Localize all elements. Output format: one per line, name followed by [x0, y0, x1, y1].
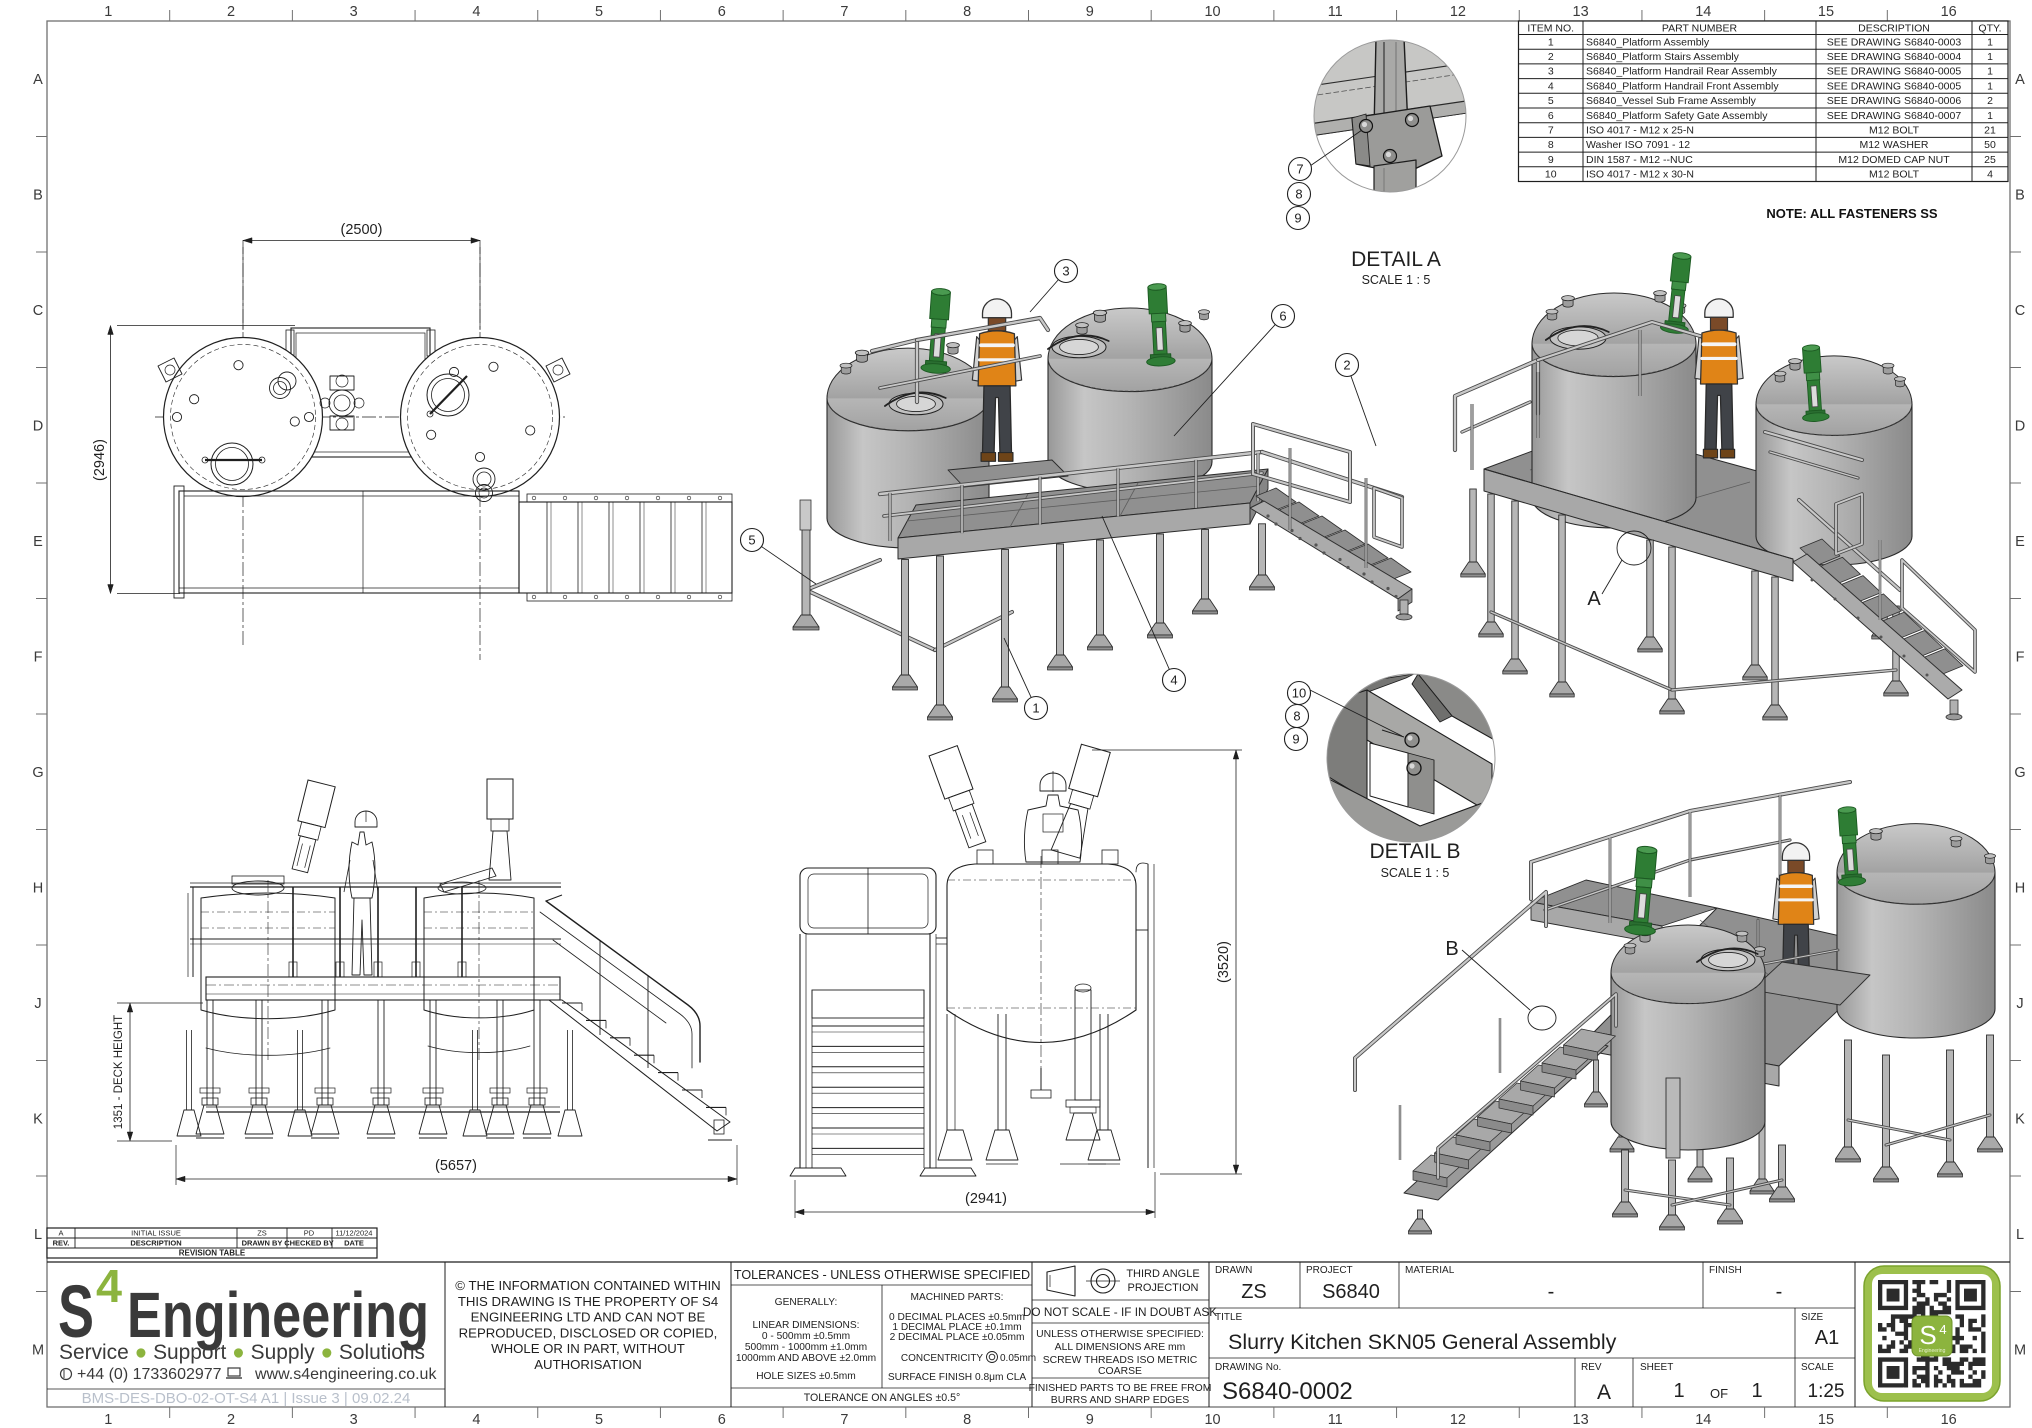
svg-text:12: 12	[1450, 4, 1466, 20]
svg-text:ISO 4017 - M12 x 25-N: ISO 4017 - M12 x 25-N	[1586, 125, 1694, 137]
svg-text:M: M	[32, 1342, 44, 1358]
svg-text:SHEET: SHEET	[1640, 1362, 1673, 1373]
svg-text:1: 1	[1032, 701, 1039, 716]
svg-text:DRAWN BY: DRAWN BY	[242, 1239, 283, 1248]
svg-text:15: 15	[1818, 1412, 1834, 1428]
svg-text:AUTHORISATION: AUTHORISATION	[534, 1357, 641, 1372]
svg-text:6: 6	[1279, 309, 1286, 324]
svg-text:DO NOT SCALE - IF IN DOUBT ASK: DO NOT SCALE - IF IN DOUBT ASK	[1023, 1305, 1217, 1319]
svg-text:PART NUMBER: PART NUMBER	[1662, 23, 1738, 35]
svg-text:10: 10	[1204, 4, 1220, 20]
svg-text:SCALE 1 : 5: SCALE 1 : 5	[1381, 866, 1450, 880]
svg-text:0 - 500mm ±0.5mm: 0 - 500mm ±0.5mm	[762, 1331, 850, 1342]
svg-text:-: -	[1776, 1281, 1783, 1303]
svg-text:S6840-0002: S6840-0002	[1222, 1378, 1353, 1405]
svg-text:S6840_Platform Stairs Assembly: S6840_Platform Stairs Assembly	[1586, 51, 1740, 63]
svg-text:1: 1	[1673, 1380, 1684, 1402]
svg-text:ZS: ZS	[257, 1229, 267, 1238]
svg-text:3: 3	[1062, 264, 1069, 279]
svg-text:7: 7	[1296, 162, 1303, 177]
svg-text:REV.: REV.	[53, 1239, 70, 1248]
svg-text:5: 5	[748, 533, 755, 548]
svg-text:A: A	[1597, 1381, 1611, 1404]
svg-text:A: A	[58, 1229, 63, 1238]
svg-text:G: G	[2014, 765, 2025, 781]
svg-text:14: 14	[1695, 4, 1711, 20]
svg-text:7: 7	[840, 1412, 848, 1428]
svg-text:ALL DIMENSIONS ARE mm: ALL DIMENSIONS ARE mm	[1055, 1342, 1186, 1353]
svg-text:3: 3	[1548, 66, 1554, 78]
svg-text:SEE DRAWING S6840-0005: SEE DRAWING S6840-0005	[1827, 66, 1962, 78]
svg-text:ISO 4017 - M12 x 30-N: ISO 4017 - M12 x 30-N	[1586, 169, 1694, 181]
svg-text:SEE DRAWING S6840-0005: SEE DRAWING S6840-0005	[1827, 80, 1962, 92]
svg-text:NOTE: ALL FASTENERS SS: NOTE: ALL FASTENERS SS	[1766, 206, 1938, 221]
svg-text:C: C	[2015, 303, 2025, 319]
svg-text:DETAIL A: DETAIL A	[1351, 248, 1441, 271]
svg-text:L: L	[2016, 1227, 2024, 1243]
svg-text:TITLE: TITLE	[1215, 1312, 1243, 1323]
svg-text:DRAWING No.: DRAWING No.	[1215, 1362, 1281, 1373]
svg-text:PROJECT: PROJECT	[1306, 1265, 1353, 1276]
svg-text:F: F	[2016, 649, 2025, 665]
svg-text:DETAIL B: DETAIL B	[1369, 840, 1460, 863]
svg-text:9: 9	[1294, 211, 1301, 226]
svg-text:QTY.: QTY.	[1978, 23, 2001, 35]
svg-text:(5657): (5657)	[435, 1158, 477, 1174]
svg-text:1351 - DECK HEIGHT: 1351 - DECK HEIGHT	[113, 1015, 125, 1129]
svg-text:DRAWN: DRAWN	[1215, 1265, 1252, 1276]
svg-text:B: B	[2015, 187, 2025, 203]
svg-text:TOLERANCES - UNLESS OTHERWISE: TOLERANCES - UNLESS OTHERWISE SPECIFIED	[734, 1268, 1030, 1282]
svg-text:M12 BOLT: M12 BOLT	[1869, 125, 1920, 137]
svg-text:5: 5	[595, 1412, 603, 1428]
svg-text:8: 8	[963, 1412, 971, 1428]
svg-text:11/12/2024: 11/12/2024	[336, 1229, 373, 1238]
svg-text:CHECKED BY: CHECKED BY	[284, 1239, 334, 1248]
svg-text:11: 11	[1328, 1412, 1343, 1428]
svg-text:S: S	[1919, 1320, 1936, 1350]
svg-text:H: H	[2015, 880, 2025, 896]
svg-text:SCREW THREADS ISO METRIC: SCREW THREADS ISO METRIC	[1043, 1355, 1198, 1366]
svg-text:INITIAL ISSUE: INITIAL ISSUE	[131, 1229, 181, 1238]
svg-text:ITEM NO.: ITEM NO.	[1527, 23, 1574, 35]
svg-text:6: 6	[718, 4, 726, 20]
svg-text:2: 2	[1343, 358, 1350, 373]
svg-text:3: 3	[350, 4, 358, 20]
svg-text:MATERIAL: MATERIAL	[1405, 1265, 1455, 1276]
svg-text:A: A	[33, 72, 43, 88]
svg-text:COARSE: COARSE	[1098, 1366, 1142, 1377]
svg-text:1: 1	[1987, 80, 1993, 92]
svg-text:C: C	[33, 303, 43, 319]
svg-text:A1: A1	[1815, 1327, 1839, 1349]
svg-text:4: 4	[1548, 80, 1554, 92]
svg-text:500mm - 1000mm ±1.0mm: 500mm - 1000mm ±1.0mm	[745, 1342, 867, 1353]
svg-text:4: 4	[1170, 673, 1177, 688]
svg-text:11: 11	[1328, 4, 1343, 20]
svg-text:2: 2	[1987, 95, 1993, 107]
svg-text:SEE DRAWING S6840-0007: SEE DRAWING S6840-0007	[1827, 110, 1962, 122]
svg-text:1: 1	[1548, 36, 1554, 48]
svg-text:0.05mm: 0.05mm	[1000, 1353, 1036, 1364]
svg-text:K: K	[2015, 1111, 2025, 1127]
svg-text:-: -	[1548, 1281, 1555, 1303]
svg-text:4: 4	[96, 1260, 122, 1312]
svg-text:5: 5	[1548, 95, 1554, 107]
svg-text:SIZE: SIZE	[1801, 1312, 1824, 1323]
svg-text:7: 7	[1548, 125, 1554, 137]
svg-text:D: D	[33, 418, 43, 434]
svg-text:REVISION TABLE: REVISION TABLE	[179, 1249, 246, 1258]
svg-text:S6840_Platform Assembly: S6840_Platform Assembly	[1586, 36, 1710, 48]
svg-text:M: M	[2014, 1342, 2026, 1358]
svg-text:E: E	[2015, 534, 2025, 550]
svg-text:CONCENTRICITY: CONCENTRICITY	[901, 1353, 984, 1364]
svg-text:www.s4engineering.co.uk: www.s4engineering.co.uk	[254, 1366, 437, 1383]
svg-text:M12 WASHER: M12 WASHER	[1859, 139, 1928, 151]
svg-text:S6840_Platform Handrail Rear A: S6840_Platform Handrail Rear Assembly	[1586, 66, 1778, 78]
svg-text:S6840_Platform Safety Gate Ass: S6840_Platform Safety Gate Assembly	[1586, 110, 1768, 122]
svg-text:Engineering: Engineering	[1919, 1348, 1946, 1354]
svg-text:DESCRIPTION: DESCRIPTION	[1858, 23, 1930, 35]
svg-text:M12 BOLT: M12 BOLT	[1869, 169, 1920, 181]
svg-text:K: K	[33, 1111, 43, 1127]
svg-text:A: A	[2015, 72, 2025, 88]
svg-text:1: 1	[1987, 36, 1993, 48]
svg-text:Washer ISO 7091 - 12: Washer ISO 7091 - 12	[1586, 139, 1690, 151]
svg-text:13: 13	[1573, 1412, 1589, 1428]
svg-text:SEE DRAWING S6840-0006: SEE DRAWING S6840-0006	[1827, 95, 1962, 107]
svg-text:REV: REV	[1581, 1362, 1602, 1373]
svg-text:SEE DRAWING S6840-0003: SEE DRAWING S6840-0003	[1827, 36, 1962, 48]
svg-text:2: 2	[227, 1412, 235, 1428]
svg-text:BURRS AND SHARP EDGES: BURRS AND SHARP EDGES	[1051, 1395, 1189, 1406]
svg-text:(2941): (2941)	[965, 1191, 1007, 1207]
svg-text:2: 2	[1548, 51, 1554, 63]
svg-text:13: 13	[1573, 4, 1589, 20]
svg-text:1: 1	[104, 1412, 112, 1428]
svg-text:B: B	[1445, 938, 1458, 960]
svg-text:SURFACE FINISH 0.8μm CLA: SURFACE FINISH 0.8μm CLA	[888, 1372, 1027, 1383]
svg-text:9: 9	[1548, 154, 1554, 166]
svg-text:UNLESS OTHERWISE SPECIFIED:: UNLESS OTHERWISE SPECIFIED:	[1036, 1329, 1204, 1340]
svg-text:14: 14	[1695, 1412, 1711, 1428]
svg-text:1: 1	[1751, 1380, 1762, 1402]
svg-text:THIRD ANGLE: THIRD ANGLE	[1126, 1268, 1199, 1280]
svg-text:DIN 1587 - M12 --NUC: DIN 1587 - M12 --NUC	[1586, 154, 1693, 166]
svg-text:M12 DOMED CAP NUT: M12 DOMED CAP NUT	[1838, 154, 1950, 166]
svg-text:B: B	[33, 187, 43, 203]
svg-text:Service ● Support ● Supply ● S: Service ● Support ● Supply ● Solutions	[59, 1340, 425, 1364]
svg-text:50: 50	[1984, 139, 1996, 151]
svg-text:S6840_Platform Handrail Front: S6840_Platform Handrail Front Assembly	[1586, 80, 1779, 92]
svg-text:Slurry Kitchen SKN05 General A: Slurry Kitchen SKN05 General Assembly	[1228, 1330, 1617, 1354]
svg-text:6: 6	[1548, 110, 1554, 122]
svg-text:FINISHED PARTS TO BE FREE FROM: FINISHED PARTS TO BE FREE FROM	[1029, 1383, 1212, 1394]
svg-text:8: 8	[1548, 139, 1554, 151]
svg-text:REPRODUCED, DISCLOSED OR COPIE: REPRODUCED, DISCLOSED OR COPIED,	[459, 1325, 718, 1340]
svg-text:J: J	[2016, 996, 2023, 1012]
svg-text:DESCRIPTION: DESCRIPTION	[130, 1239, 181, 1248]
svg-text:1000mm AND ABOVE ±2.0mm: 1000mm AND ABOVE ±2.0mm	[736, 1353, 876, 1364]
svg-text:9: 9	[1086, 1412, 1094, 1428]
svg-text:S6840: S6840	[1322, 1281, 1380, 1303]
svg-text:+44 (0) 1733602977: +44 (0) 1733602977	[77, 1366, 222, 1383]
svg-text:8: 8	[1293, 709, 1300, 724]
svg-text:2: 2	[227, 4, 235, 20]
svg-text:15: 15	[1818, 4, 1834, 20]
svg-text:(2500): (2500)	[341, 222, 383, 238]
svg-text:SCALE 1 : 5: SCALE 1 : 5	[1362, 273, 1431, 287]
svg-text:1: 1	[1987, 66, 1993, 78]
svg-text:H: H	[33, 880, 43, 896]
svg-text:1: 1	[104, 4, 112, 20]
svg-text:FINISH: FINISH	[1709, 1265, 1742, 1276]
svg-text:8: 8	[963, 4, 971, 20]
svg-text:2 DECIMAL PLACE ±0.05mm: 2 DECIMAL PLACE ±0.05mm	[890, 1332, 1025, 1343]
svg-text:3: 3	[350, 1412, 358, 1428]
svg-text:12: 12	[1450, 1412, 1466, 1428]
svg-text:16: 16	[1941, 4, 1957, 20]
svg-text:SEE DRAWING S6840-0004: SEE DRAWING S6840-0004	[1827, 51, 1962, 63]
svg-text:TOLERANCE ON ANGLES ±0.5°: TOLERANCE ON ANGLES ±0.5°	[804, 1392, 960, 1404]
svg-text:21: 21	[1984, 125, 1996, 137]
svg-text:1: 1	[1987, 110, 1993, 122]
svg-text:1: 1	[1987, 51, 1993, 63]
svg-text:L: L	[34, 1227, 42, 1243]
svg-text:DATE: DATE	[344, 1239, 364, 1248]
svg-text:(2946): (2946)	[92, 439, 108, 481]
svg-text:A: A	[1587, 588, 1601, 610]
svg-text:8: 8	[1295, 187, 1302, 202]
svg-text:F: F	[34, 649, 43, 665]
svg-text:WHOLE OR IN PART, WITHOUT: WHOLE OR IN PART, WITHOUT	[491, 1341, 685, 1356]
svg-text:1:25: 1:25	[1808, 1381, 1845, 1402]
svg-text:4: 4	[472, 1412, 480, 1428]
svg-text:SCALE: SCALE	[1801, 1362, 1834, 1373]
svg-text:OF: OF	[1710, 1386, 1728, 1401]
svg-text:LINEAR DIMENSIONS:: LINEAR DIMENSIONS:	[753, 1320, 860, 1331]
svg-text:(3520): (3520)	[1216, 941, 1232, 983]
svg-text:BMS-DES-DBO-02-OT-S4 A1 | Is: BMS-DES-DBO-02-OT-S4 A1 | Issue 3 | 09.0…	[82, 1390, 411, 1407]
svg-text:© THE INFORMATION CONTAINED WI: © THE INFORMATION CONTAINED WITHIN	[455, 1278, 720, 1293]
svg-text:10: 10	[1204, 1412, 1220, 1428]
svg-text:D: D	[2015, 418, 2025, 434]
svg-text:6: 6	[718, 1412, 726, 1428]
svg-text:GENERALLY:: GENERALLY:	[775, 1297, 838, 1308]
svg-text:10: 10	[1545, 169, 1557, 181]
svg-text:16: 16	[1941, 1412, 1957, 1428]
svg-text:10: 10	[1292, 686, 1306, 701]
svg-text:MACHINED PARTS:: MACHINED PARTS:	[910, 1292, 1003, 1303]
svg-text:PROJECTION: PROJECTION	[1128, 1282, 1199, 1294]
svg-text:7: 7	[840, 4, 848, 20]
svg-text:HOLE SIZES ±0.5mm: HOLE SIZES ±0.5mm	[756, 1371, 856, 1382]
svg-text:J: J	[34, 996, 41, 1012]
svg-text:G: G	[32, 765, 43, 781]
svg-text:4: 4	[472, 4, 480, 20]
svg-text:ZS: ZS	[1241, 1281, 1267, 1303]
svg-text:4: 4	[1987, 169, 1993, 181]
svg-text:25: 25	[1984, 154, 1996, 166]
svg-text:9: 9	[1292, 732, 1299, 747]
svg-text:E: E	[33, 534, 43, 550]
svg-text:5: 5	[595, 4, 603, 20]
svg-text:4: 4	[1939, 1322, 1946, 1337]
svg-text:9: 9	[1086, 4, 1094, 20]
svg-text:ENGINEERING LTD AND CAN NOT BE: ENGINEERING LTD AND CAN NOT BE	[471, 1310, 706, 1325]
svg-text:S6840_Vessel Sub Frame Assembl: S6840_Vessel Sub Frame Assembly	[1586, 95, 1757, 107]
svg-text:PD: PD	[304, 1229, 315, 1238]
svg-text:THIS DRAWING IS THE PROPERTY O: THIS DRAWING IS THE PROPERTY OF S4	[458, 1294, 718, 1309]
